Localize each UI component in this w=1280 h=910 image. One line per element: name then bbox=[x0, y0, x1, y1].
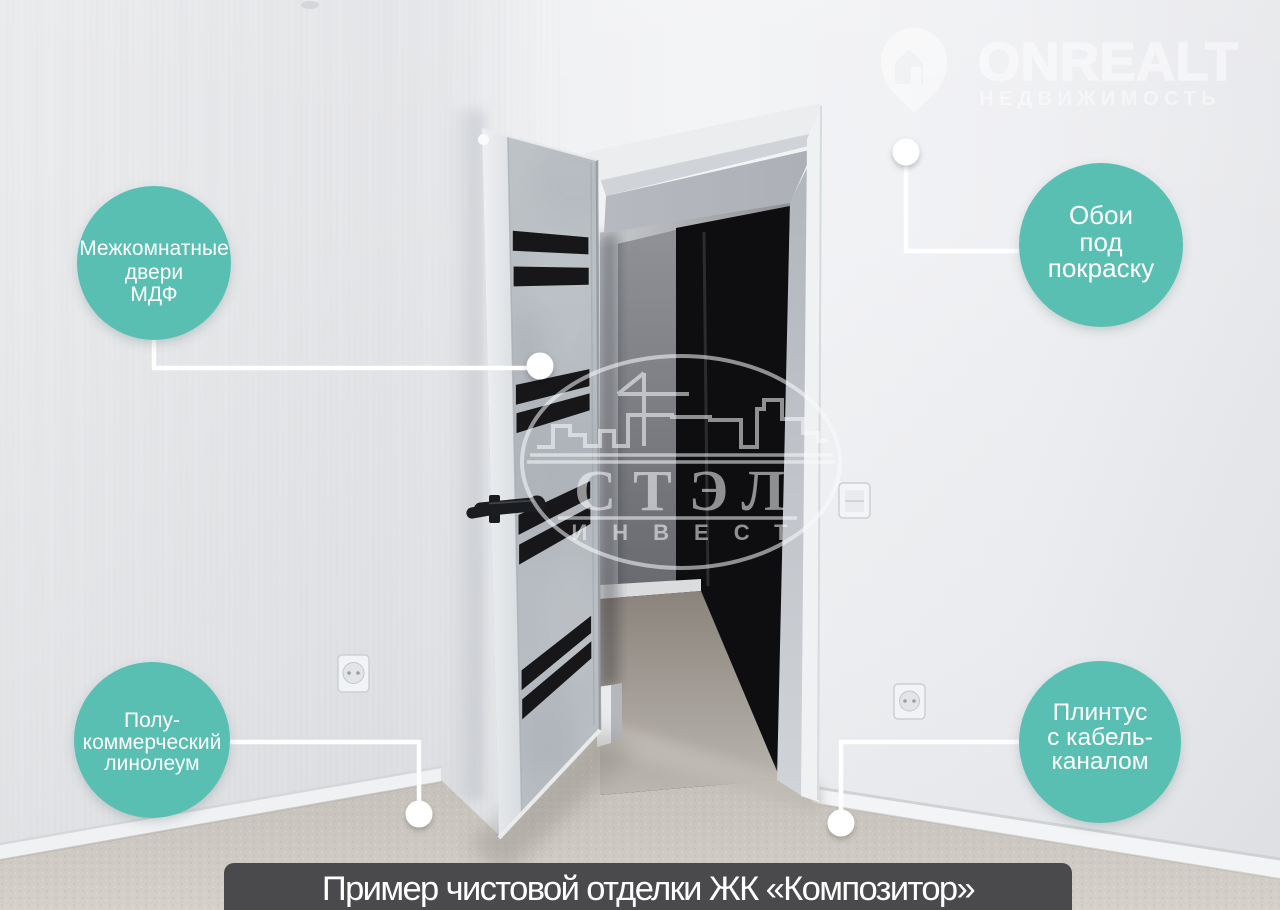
svg-text:Плинтус: Плинтус bbox=[1053, 699, 1148, 726]
svg-text:с кабель-: с кабель- bbox=[1047, 724, 1153, 751]
svg-text:НЕДВИЖИМОСТЬ: НЕДВИЖИМОСТЬ bbox=[979, 88, 1221, 110]
svg-text:Межкомнатные: Межкомнатные bbox=[79, 237, 229, 260]
svg-text:Пример чистовой отделки ЖК «Ко: Пример чистовой отделки ЖК «Композитор» bbox=[322, 870, 975, 908]
svg-text:каналом: каналом bbox=[1051, 748, 1148, 775]
svg-text:линолеум: линолеум bbox=[104, 752, 199, 775]
svg-text:Обои: Обои bbox=[1069, 200, 1133, 230]
svg-text:СТЭЛ: СТЭЛ bbox=[574, 458, 801, 523]
svg-text:ИНВЕСТ: ИНВЕСТ bbox=[571, 520, 812, 545]
svg-text:МДФ: МДФ bbox=[130, 283, 177, 306]
svg-text:Полу-: Полу- bbox=[124, 709, 180, 732]
svg-text:ONREALT: ONREALT bbox=[978, 32, 1238, 92]
svg-text:коммерческий: коммерческий bbox=[83, 731, 222, 754]
svg-text:двери: двери bbox=[125, 261, 183, 284]
svg-text:покраску: покраску bbox=[1048, 253, 1155, 283]
